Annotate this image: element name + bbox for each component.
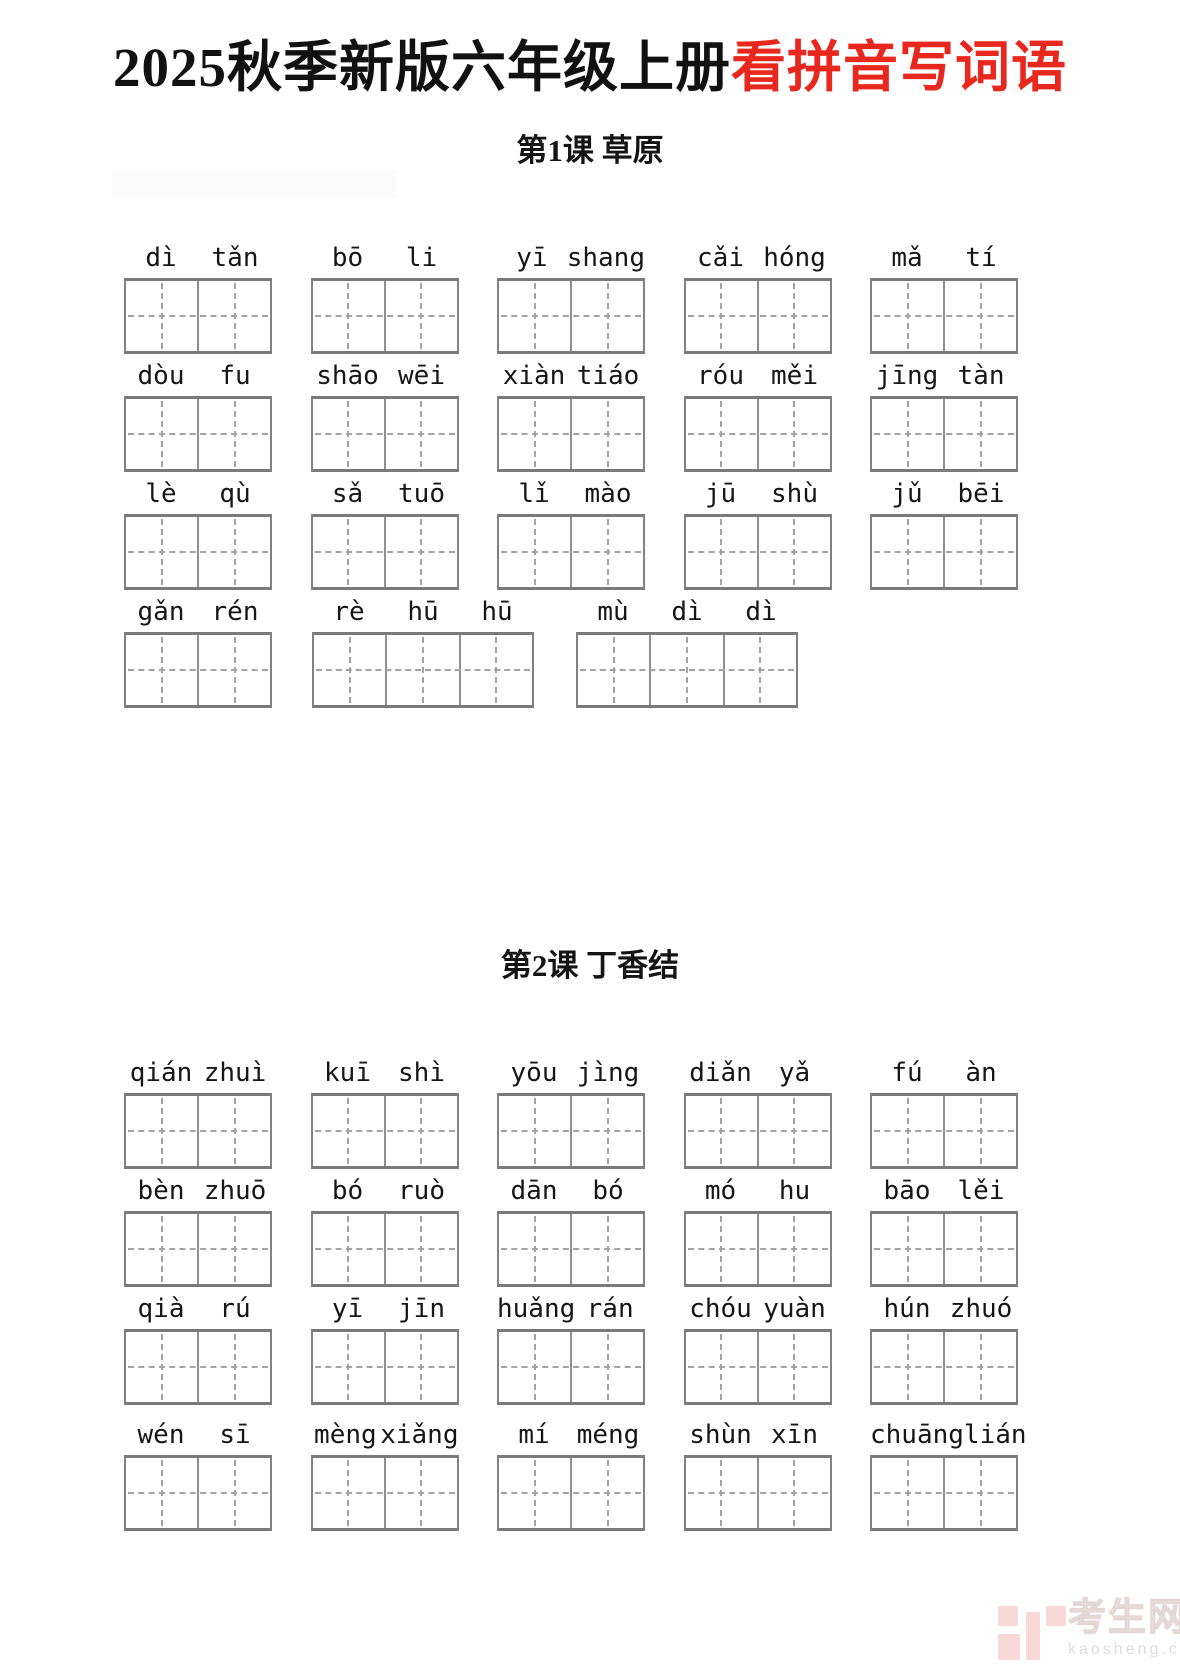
- pinyin-syllable: bó: [311, 1175, 385, 1207]
- writing-grid: [870, 1211, 1018, 1287]
- section-2-grid-area: qiánzhuìkuīshìyōujìngdiǎnyǎfúànbènzhuōbó…: [124, 1055, 1018, 1531]
- pinyin-syllable: zhuì: [198, 1057, 272, 1089]
- pinyin-syllable: mó: [684, 1175, 758, 1207]
- writing-grid: [870, 278, 1018, 354]
- pinyin-syllable: zhuō: [198, 1175, 272, 1207]
- pinyin-label: róuměi: [684, 358, 832, 392]
- word-block: chuānglián: [870, 1417, 1018, 1531]
- grid-cell: [872, 1096, 943, 1166]
- grid-cell: [649, 635, 722, 705]
- grid-cell: [686, 1096, 757, 1166]
- grid-cell: [384, 281, 457, 351]
- writing-grid: [311, 396, 459, 472]
- grid-cell: [313, 1214, 384, 1284]
- word-block: bóruò: [311, 1173, 459, 1287]
- word-block: jīngtàn: [870, 358, 1018, 472]
- grid-cell: [570, 517, 643, 587]
- grid-cell: [384, 1458, 457, 1528]
- pinyin-label: fúàn: [870, 1055, 1018, 1089]
- word-row: wénsīmèngxiǎngmíméngshùnxīnchuānglián: [124, 1417, 1018, 1531]
- writing-grid: [124, 1093, 272, 1169]
- section-1-grid-area: dìtǎnbōliyīshangcǎihóngmǎtídòufushāowēix…: [124, 240, 1018, 708]
- pinyin-syllable: wén: [124, 1419, 198, 1451]
- pinyin-syllable: bēi: [944, 478, 1018, 510]
- pinyin-syllable: rú: [198, 1293, 272, 1325]
- pinyin-syllable: qù: [198, 478, 272, 510]
- word-row: gǎnrénrèhūhūmùdìdì: [124, 594, 1018, 708]
- word-block: qiánzhuì: [124, 1055, 272, 1169]
- pinyin-label: míméng: [497, 1417, 645, 1451]
- grid-cell: [943, 1214, 1016, 1284]
- pinyin-label: shāowēi: [311, 358, 459, 392]
- pinyin-syllable: tiáo: [571, 360, 645, 392]
- pinyin-syllable: bāo: [870, 1175, 944, 1207]
- pinyin-syllable: jǔ: [870, 478, 944, 510]
- grid-cell: [872, 281, 943, 351]
- grid-cell: [313, 1458, 384, 1528]
- writing-grid: [124, 1329, 272, 1405]
- grid-cell: [126, 281, 197, 351]
- writing-grid: [497, 1329, 645, 1405]
- word-block: cǎihóng: [684, 240, 832, 354]
- grid-cell: [197, 399, 270, 469]
- pinyin-syllable: fú: [870, 1057, 944, 1089]
- word-block: móhu: [684, 1173, 832, 1287]
- grid-cell: [686, 1214, 757, 1284]
- pinyin-syllable: hū: [460, 596, 534, 628]
- pinyin-label: wénsī: [124, 1417, 272, 1451]
- word-row: qiánzhuìkuīshìyōujìngdiǎnyǎfúàn: [124, 1055, 1018, 1169]
- grid-cell: [313, 1332, 384, 1402]
- pinyin-label: kuīshì: [311, 1055, 459, 1089]
- pinyin-syllable: chuāng: [870, 1419, 964, 1451]
- pinyin-label: jīngtàn: [870, 358, 1018, 392]
- word-block: wénsī: [124, 1417, 272, 1531]
- grid-cell: [757, 1214, 830, 1284]
- word-block: fúàn: [870, 1055, 1018, 1169]
- pinyin-syllable: jū: [684, 478, 758, 510]
- pinyin-syllable: àn: [944, 1057, 1018, 1089]
- pinyin-syllable: chóu: [684, 1293, 758, 1325]
- title-red-part: 看拼音写词语: [731, 37, 1067, 98]
- grid-cell: [757, 281, 830, 351]
- pinyin-syllable: wēi: [385, 360, 459, 392]
- pinyin-syllable: shù: [758, 478, 832, 510]
- writing-grid: [870, 1093, 1018, 1169]
- scan-artifact-band: [112, 170, 397, 198]
- pinyin-syllable: xīn: [758, 1419, 832, 1451]
- word-block: xiàntiáo: [497, 358, 645, 472]
- grid-cell: [384, 399, 457, 469]
- grid-cell: [578, 635, 649, 705]
- grid-cell: [126, 635, 197, 705]
- section-2-heading: 第2课 丁香结: [0, 947, 1180, 985]
- word-block: dānbó: [497, 1173, 645, 1287]
- pinyin-label: yōujìng: [497, 1055, 645, 1089]
- grid-cell: [570, 281, 643, 351]
- grid-cell: [943, 1458, 1016, 1528]
- worksheet-page: 2025秋季新版六年级上册看拼音写词语 第1课 草原 dìtǎnbōliyīsh…: [0, 0, 1180, 1674]
- watermark-site-name: 考生网: [1068, 1598, 1180, 1638]
- word-block: mǎtí: [870, 240, 1018, 354]
- writing-grid: [684, 514, 832, 590]
- grid-cell: [686, 281, 757, 351]
- grid-cell: [686, 517, 757, 587]
- writing-grid: [311, 514, 459, 590]
- word-row: bènzhuōbóruòdānbómóhubāolěi: [124, 1173, 1018, 1287]
- pinyin-syllable: yī: [497, 242, 567, 274]
- pinyin-syllable: hu: [758, 1175, 832, 1207]
- grid-cell: [313, 517, 384, 587]
- writing-grid: [311, 1093, 459, 1169]
- pinyin-syllable: mǎ: [870, 242, 944, 274]
- pinyin-label: cǎihóng: [684, 240, 832, 274]
- word-block: shùnxīn: [684, 1417, 832, 1531]
- writing-grid: [124, 1455, 272, 1531]
- grid-cell: [384, 1096, 457, 1166]
- pinyin-syllable: róu: [684, 360, 758, 392]
- writing-grid: [684, 396, 832, 472]
- pinyin-syllable: sǎ: [311, 478, 385, 510]
- pinyin-syllable: hóng: [758, 242, 832, 274]
- grid-cell: [943, 1332, 1016, 1402]
- grid-cell: [872, 1214, 943, 1284]
- pinyin-syllable: mào: [571, 478, 645, 510]
- pinyin-syllable: dòu: [124, 360, 198, 392]
- grid-cell: [384, 1214, 457, 1284]
- pinyin-syllable: tǎn: [198, 242, 272, 274]
- pinyin-syllable: shang: [567, 242, 645, 274]
- pinyin-syllable: méng: [571, 1419, 645, 1451]
- writing-grid: [684, 278, 832, 354]
- pinyin-label: lèqù: [124, 476, 272, 510]
- grid-cell: [126, 1458, 197, 1528]
- grid-cell: [943, 1096, 1016, 1166]
- pinyin-label: chuānglián: [870, 1417, 1018, 1451]
- writing-grid: [124, 396, 272, 472]
- pinyin-label: yīshang: [497, 240, 645, 274]
- pinyin-syllable: mù: [576, 596, 650, 628]
- writing-grid: [311, 278, 459, 354]
- pinyin-label: qiàrú: [124, 1291, 272, 1325]
- pinyin-syllable: xiǎng: [380, 1419, 458, 1451]
- pinyin-syllable: diǎn: [684, 1057, 758, 1089]
- grid-cell: [570, 1214, 643, 1284]
- pinyin-label: huǎngrán: [497, 1291, 645, 1325]
- writing-grid: [497, 1093, 645, 1169]
- pinyin-label: bènzhuō: [124, 1173, 272, 1207]
- pinyin-label: gǎnrén: [124, 594, 272, 628]
- grid-cell: [943, 399, 1016, 469]
- word-block: mùdìdì: [576, 594, 798, 708]
- kaosheng-logo-icon: [998, 1596, 1068, 1662]
- pinyin-syllable: jìng: [571, 1057, 645, 1089]
- writing-grid: [497, 278, 645, 354]
- word-row: dòufushāowēixiàntiáoróuměijīngtàn: [124, 358, 1018, 472]
- grid-cell: [385, 635, 458, 705]
- grid-cell: [499, 1096, 570, 1166]
- pinyin-syllable: mí: [497, 1419, 571, 1451]
- pinyin-syllable: kuī: [311, 1057, 385, 1089]
- pinyin-syllable: dì: [650, 596, 724, 628]
- grid-cell: [384, 1332, 457, 1402]
- pinyin-syllable: sī: [198, 1419, 272, 1451]
- section-lesson-2: 第2课 丁香结 qiánzhuìkuīshìyōujìngdiǎnyǎfúànb…: [0, 947, 1180, 1531]
- word-block: rèhūhū: [312, 594, 534, 708]
- grid-cell: [197, 1214, 270, 1284]
- watermark-site-url: kaosheng.com: [1068, 1640, 1180, 1660]
- word-block: bènzhuō: [124, 1173, 272, 1287]
- grid-cell: [459, 635, 532, 705]
- word-block: húnzhuó: [870, 1291, 1018, 1405]
- grid-cell: [757, 1458, 830, 1528]
- writing-grid: [684, 1211, 832, 1287]
- pinyin-label: shùnxīn: [684, 1417, 832, 1451]
- pinyin-label: húnzhuó: [870, 1291, 1018, 1325]
- grid-cell: [499, 1458, 570, 1528]
- watermark-text: 考生网 kaosheng.com: [1068, 1596, 1180, 1662]
- pinyin-label: rèhūhū: [312, 594, 534, 628]
- pinyin-syllable: zhuó: [944, 1293, 1018, 1325]
- word-block: sǎtuō: [311, 476, 459, 590]
- pinyin-syllable: bō: [311, 242, 385, 274]
- grid-cell: [126, 1096, 197, 1166]
- grid-cell: [313, 281, 384, 351]
- writing-grid: [870, 1455, 1018, 1531]
- pinyin-syllable: jīng: [870, 360, 944, 392]
- pinyin-syllable: yōu: [497, 1057, 571, 1089]
- pinyin-syllable: qià: [124, 1293, 198, 1325]
- grid-cell: [499, 517, 570, 587]
- writing-grid: [870, 514, 1018, 590]
- grid-cell: [570, 1458, 643, 1528]
- pinyin-syllable: jīn: [385, 1293, 459, 1325]
- pinyin-label: xiàntiáo: [497, 358, 645, 392]
- pinyin-syllable: rén: [198, 596, 272, 628]
- writing-grid: [124, 514, 272, 590]
- section-lesson-1: 第1课 草原 dìtǎnbōliyīshangcǎihóngmǎtídòufus…: [0, 132, 1180, 708]
- grid-cell: [499, 1332, 570, 1402]
- watermark: 考生网 kaosheng.com: [998, 1596, 1180, 1662]
- writing-grid: [497, 1211, 645, 1287]
- writing-grid: [870, 1329, 1018, 1405]
- word-block: lǐmào: [497, 476, 645, 590]
- pinyin-syllable: hū: [386, 596, 460, 628]
- grid-cell: [872, 399, 943, 469]
- writing-grid: [684, 1329, 832, 1405]
- word-block: bōli: [311, 240, 459, 354]
- pinyin-syllable: gǎn: [124, 596, 198, 628]
- pinyin-syllable: lěi: [944, 1175, 1018, 1207]
- word-block: jūshù: [684, 476, 832, 590]
- pinyin-syllable: huǎng: [497, 1293, 575, 1325]
- pinyin-syllable: shì: [385, 1057, 459, 1089]
- word-block: dòufu: [124, 358, 272, 472]
- pinyin-label: diǎnyǎ: [684, 1055, 832, 1089]
- word-block: chóuyuàn: [684, 1291, 832, 1405]
- pinyin-syllable: lián: [964, 1419, 1027, 1451]
- grid-cell: [197, 517, 270, 587]
- word-block: dìtǎn: [124, 240, 272, 354]
- writing-grid: [497, 1455, 645, 1531]
- writing-grid: [497, 514, 645, 590]
- pinyin-label: mèngxiǎng: [311, 1417, 459, 1451]
- grid-cell: [197, 1458, 270, 1528]
- word-block: huǎngrán: [497, 1291, 645, 1405]
- pinyin-syllable: hún: [870, 1293, 944, 1325]
- grid-cell: [499, 399, 570, 469]
- pinyin-syllable: qián: [124, 1057, 198, 1089]
- grid-cell: [757, 399, 830, 469]
- grid-cell: [126, 1332, 197, 1402]
- word-row: lèqùsǎtuōlǐmàojūshùjǔbēi: [124, 476, 1018, 590]
- word-block: yījīn: [311, 1291, 459, 1405]
- grid-cell: [499, 1214, 570, 1284]
- grid-cell: [197, 1096, 270, 1166]
- pinyin-syllable: tí: [944, 242, 1018, 274]
- grid-cell: [197, 635, 270, 705]
- grid-cell: [757, 517, 830, 587]
- page-title: 2025秋季新版六年级上册看拼音写词语: [0, 0, 1180, 98]
- grid-cell: [314, 635, 385, 705]
- pinyin-syllable: yī: [311, 1293, 385, 1325]
- pinyin-syllable: bó: [571, 1175, 645, 1207]
- pinyin-label: dòufu: [124, 358, 272, 392]
- pinyin-label: bōli: [311, 240, 459, 274]
- pinyin-syllable: xiàn: [497, 360, 571, 392]
- grid-cell: [570, 1096, 643, 1166]
- word-block: qiàrú: [124, 1291, 272, 1405]
- grid-cell: [313, 1096, 384, 1166]
- grid-cell: [686, 1458, 757, 1528]
- word-block: mèngxiǎng: [311, 1417, 459, 1531]
- grid-cell: [686, 1332, 757, 1402]
- word-row: qiàrúyījīnhuǎngránchóuyuànhúnzhuó: [124, 1291, 1018, 1405]
- pinyin-syllable: li: [385, 242, 459, 274]
- grid-cell: [757, 1096, 830, 1166]
- writing-grid: [684, 1455, 832, 1531]
- pinyin-label: mùdìdì: [576, 594, 798, 628]
- word-block: yīshang: [497, 240, 645, 354]
- pinyin-syllable: tàn: [944, 360, 1018, 392]
- grid-cell: [943, 517, 1016, 587]
- pinyin-syllable: dì: [124, 242, 198, 274]
- word-block: shāowēi: [311, 358, 459, 472]
- pinyin-label: sǎtuō: [311, 476, 459, 510]
- pinyin-label: jǔbēi: [870, 476, 1018, 510]
- writing-grid: [124, 278, 272, 354]
- grid-cell: [499, 281, 570, 351]
- grid-cell: [872, 1458, 943, 1528]
- grid-cell: [872, 1332, 943, 1402]
- pinyin-label: yījīn: [311, 1291, 459, 1325]
- word-block: míméng: [497, 1417, 645, 1531]
- pinyin-label: qiánzhuì: [124, 1055, 272, 1089]
- pinyin-syllable: rè: [312, 596, 386, 628]
- writing-grid: [311, 1329, 459, 1405]
- pinyin-label: dìtǎn: [124, 240, 272, 274]
- pinyin-syllable: cǎi: [684, 242, 758, 274]
- word-block: jǔbēi: [870, 476, 1018, 590]
- pinyin-syllable: fu: [198, 360, 272, 392]
- grid-cell: [197, 281, 270, 351]
- writing-grid: [497, 396, 645, 472]
- pinyin-syllable: shāo: [311, 360, 385, 392]
- word-block: gǎnrén: [124, 594, 272, 708]
- grid-cell: [126, 399, 197, 469]
- pinyin-label: dānbó: [497, 1173, 645, 1207]
- word-block: yōujìng: [497, 1055, 645, 1169]
- grid-cell: [570, 1332, 643, 1402]
- grid-cell: [197, 1332, 270, 1402]
- word-block: bāolěi: [870, 1173, 1018, 1287]
- word-block: róuměi: [684, 358, 832, 472]
- pinyin-syllable: mèng: [311, 1419, 381, 1451]
- pinyin-syllable: dì: [724, 596, 798, 628]
- section-1-heading: 第1课 草原: [0, 132, 1180, 170]
- pinyin-label: bóruò: [311, 1173, 459, 1207]
- writing-grid: [124, 1211, 272, 1287]
- grid-cell: [943, 281, 1016, 351]
- writing-grid: [576, 632, 798, 708]
- pinyin-syllable: tuō: [385, 478, 459, 510]
- writing-grid: [684, 1093, 832, 1169]
- pinyin-syllable: yuàn: [758, 1293, 832, 1325]
- pinyin-syllable: lǐ: [497, 478, 571, 510]
- pinyin-syllable: yǎ: [758, 1057, 832, 1089]
- word-row: dìtǎnbōliyīshangcǎihóngmǎtí: [124, 240, 1018, 354]
- writing-grid: [311, 1211, 459, 1287]
- pinyin-label: lǐmào: [497, 476, 645, 510]
- grid-cell: [384, 517, 457, 587]
- pinyin-syllable: rán: [575, 1293, 645, 1325]
- grid-cell: [872, 517, 943, 587]
- grid-cell: [126, 517, 197, 587]
- pinyin-label: chóuyuàn: [684, 1291, 832, 1325]
- pinyin-syllable: shùn: [684, 1419, 758, 1451]
- word-block: kuīshì: [311, 1055, 459, 1169]
- title-black-part: 2025秋季新版六年级上册: [113, 37, 731, 98]
- pinyin-label: móhu: [684, 1173, 832, 1207]
- word-block: lèqù: [124, 476, 272, 590]
- pinyin-label: mǎtí: [870, 240, 1018, 274]
- grid-cell: [570, 399, 643, 469]
- word-block: diǎnyǎ: [684, 1055, 832, 1169]
- grid-cell: [126, 1214, 197, 1284]
- pinyin-label: bāolěi: [870, 1173, 1018, 1207]
- pinyin-syllable: bèn: [124, 1175, 198, 1207]
- writing-grid: [312, 632, 534, 708]
- writing-grid: [311, 1455, 459, 1531]
- pinyin-syllable: dān: [497, 1175, 571, 1207]
- grid-cell: [686, 399, 757, 469]
- pinyin-syllable: měi: [758, 360, 832, 392]
- pinyin-label: jūshù: [684, 476, 832, 510]
- writing-grid: [870, 396, 1018, 472]
- grid-cell: [757, 1332, 830, 1402]
- writing-grid: [124, 632, 272, 708]
- grid-cell: [313, 399, 384, 469]
- pinyin-syllable: ruò: [385, 1175, 459, 1207]
- grid-cell: [723, 635, 796, 705]
- pinyin-syllable: lè: [124, 478, 198, 510]
